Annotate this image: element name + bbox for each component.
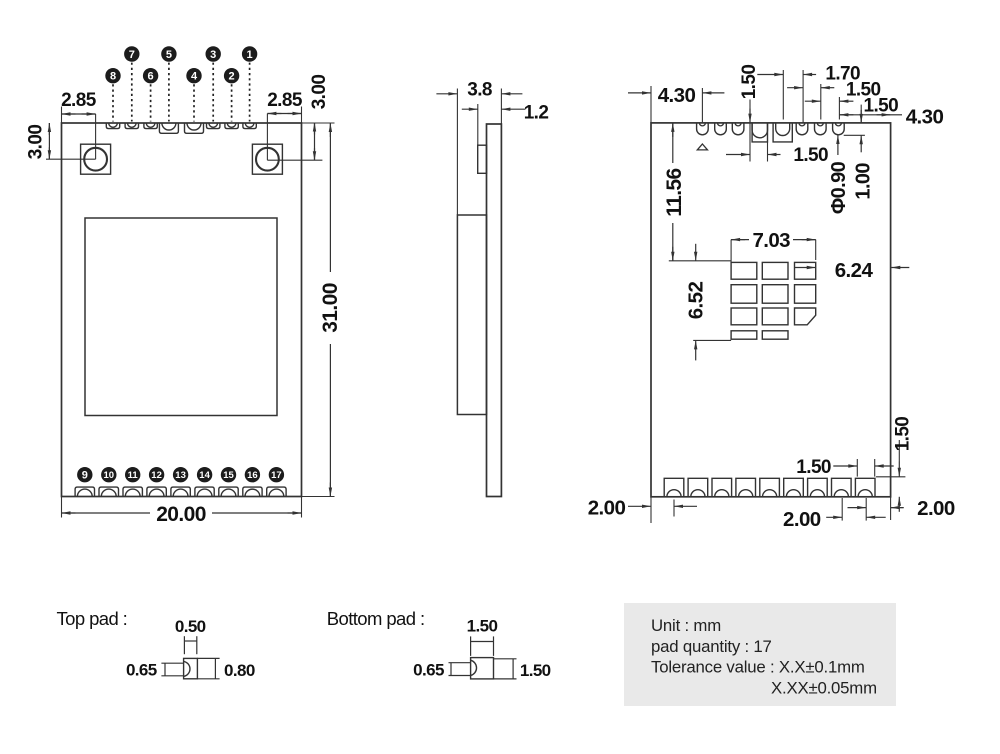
svg-text:1.50: 1.50 <box>796 457 831 478</box>
svg-text:6.52: 6.52 <box>685 282 708 320</box>
svg-text:7.03: 7.03 <box>752 229 790 252</box>
svg-text:1.50: 1.50 <box>520 661 551 680</box>
svg-text:3: 3 <box>210 49 216 61</box>
svg-text:6: 6 <box>148 71 154 83</box>
svg-text:14: 14 <box>199 470 210 481</box>
svg-text:0.65: 0.65 <box>413 661 444 680</box>
svg-text:0.80: 0.80 <box>224 661 255 680</box>
svg-text:Unit : mm: Unit : mm <box>651 616 721 635</box>
svg-text:Φ0.90: Φ0.90 <box>828 161 850 214</box>
svg-text:5: 5 <box>166 49 172 61</box>
svg-text:15: 15 <box>223 470 234 481</box>
svg-text:17: 17 <box>271 470 282 481</box>
svg-text:20.00: 20.00 <box>156 503 206 526</box>
svg-text:Tolerance value : X.X±0.1mm: Tolerance value : X.X±0.1mm <box>651 657 865 676</box>
svg-text:13: 13 <box>175 470 186 481</box>
svg-text:X.XX±0.05mm: X.XX±0.05mm <box>771 678 877 697</box>
svg-text:0.50: 0.50 <box>175 617 206 636</box>
svg-text:12: 12 <box>151 470 162 481</box>
svg-text:1.50: 1.50 <box>739 65 760 100</box>
svg-text:8: 8 <box>110 71 116 83</box>
svg-text:Top pad :: Top pad : <box>57 608 128 629</box>
svg-text:1.2: 1.2 <box>524 103 549 124</box>
svg-text:2: 2 <box>229 71 235 83</box>
svg-text:2.00: 2.00 <box>917 497 955 520</box>
svg-text:7: 7 <box>129 49 135 61</box>
svg-text:11.56: 11.56 <box>663 168 686 216</box>
svg-text:11: 11 <box>128 470 139 481</box>
svg-text:9: 9 <box>82 470 88 482</box>
svg-text:10: 10 <box>104 470 115 481</box>
svg-text:16: 16 <box>247 470 258 481</box>
svg-text:2.85: 2.85 <box>267 90 303 111</box>
svg-text:6.24: 6.24 <box>835 259 874 282</box>
svg-text:1: 1 <box>247 49 253 61</box>
svg-text:4.30: 4.30 <box>658 84 696 107</box>
svg-text:2.00: 2.00 <box>588 497 626 520</box>
svg-text:4.30: 4.30 <box>906 105 944 128</box>
svg-text:3.8: 3.8 <box>467 80 492 101</box>
svg-text:31.00: 31.00 <box>319 283 342 333</box>
svg-text:1.50: 1.50 <box>893 417 914 452</box>
svg-text:3.00: 3.00 <box>25 125 46 160</box>
svg-text:1.50: 1.50 <box>864 96 899 117</box>
svg-text:0.65: 0.65 <box>126 661 157 680</box>
svg-text:1.50: 1.50 <box>793 145 828 166</box>
svg-text:2.00: 2.00 <box>783 508 821 531</box>
svg-text:1.00: 1.00 <box>853 163 875 200</box>
svg-text:Bottom pad :: Bottom pad : <box>327 608 425 629</box>
svg-text:4: 4 <box>191 71 198 83</box>
svg-text:2.85: 2.85 <box>61 90 97 111</box>
svg-text:1.50: 1.50 <box>467 617 498 636</box>
svg-text:pad quantity : 17: pad quantity : 17 <box>651 637 772 656</box>
svg-text:3.00: 3.00 <box>309 75 330 110</box>
